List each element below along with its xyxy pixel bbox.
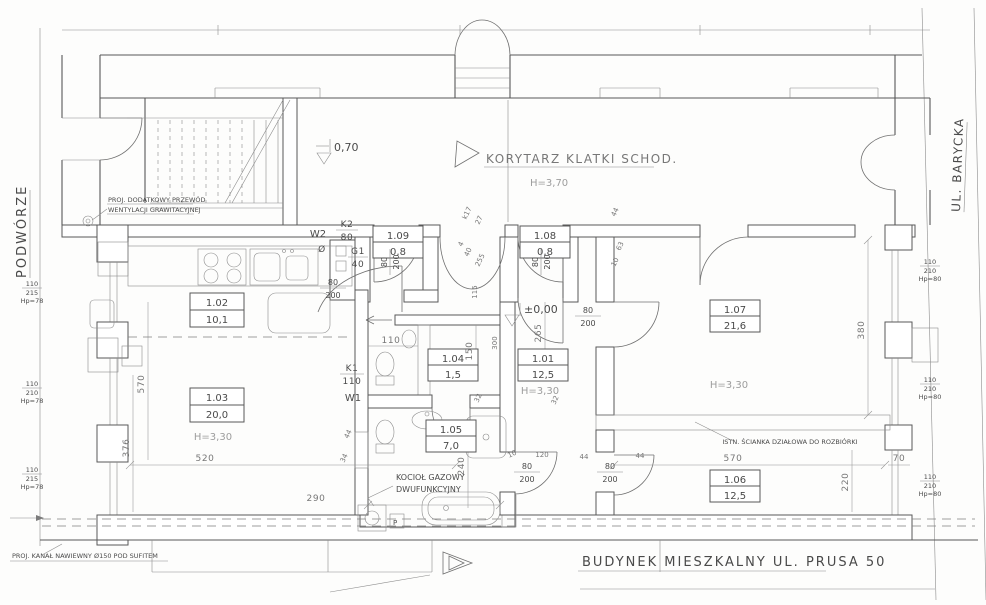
svg-text:200: 200 xyxy=(602,475,617,484)
room-label-1-07: 1.07 21,6 H=3,30 xyxy=(710,300,760,391)
dim-110: 110 xyxy=(382,336,401,346)
svg-text:1.05: 1.05 xyxy=(440,425,462,436)
svg-text:215: 215 xyxy=(26,475,38,483)
window-label-right-2: 110 210 Hp=80 xyxy=(919,376,942,401)
window-label-right-3: 110 210 Hp=80 xyxy=(919,473,942,498)
svg-text:7,0: 7,0 xyxy=(443,441,459,452)
corridor-name: KORYTARZ KLATKI SCHOD. xyxy=(486,152,678,166)
dim-120: 120 xyxy=(535,451,548,459)
street-label-right: UL. BARYCKA xyxy=(949,117,967,212)
door-label-101-lobby: 80 200 xyxy=(514,462,540,484)
room-label-1-03: 1.03 20,0 H=3,30 xyxy=(190,388,244,443)
svg-text:80: 80 xyxy=(380,257,389,267)
apartment-level: ±0,00 xyxy=(524,303,558,316)
dim-40: 40 xyxy=(463,246,474,257)
left-outer-wall xyxy=(97,225,128,545)
dim-290: 290 xyxy=(307,494,326,504)
stack-w2-dia: Ø xyxy=(318,244,326,255)
dim-44-a: 44 xyxy=(610,206,621,218)
svg-text:Hp=80: Hp=80 xyxy=(919,275,942,283)
svg-text:210: 210 xyxy=(924,267,936,275)
room-label-1-01: 1.01 12,5 H=3,30 xyxy=(518,349,568,397)
dim-44-b: 44 xyxy=(343,428,354,440)
svg-text:80: 80 xyxy=(328,278,338,287)
svg-text:210: 210 xyxy=(924,482,936,490)
annotation-demolition: ISTN. ŚCIANKA DZIAŁOWA DO ROZBIÓRKI xyxy=(695,422,858,446)
svg-text:200: 200 xyxy=(392,254,401,269)
apartment-north-wall xyxy=(62,225,915,237)
svg-text:1.09: 1.09 xyxy=(387,231,409,242)
building-title: BUDYNEK MIESZKALNY UL. PRUSA 50 xyxy=(582,555,886,570)
svg-text:80: 80 xyxy=(531,257,540,267)
svg-text:80: 80 xyxy=(341,233,354,243)
svg-text:1.02: 1.02 xyxy=(206,298,228,309)
drawing-mark-icon xyxy=(443,552,472,574)
dim-150: 150 xyxy=(465,342,475,361)
svg-text:1,5: 1,5 xyxy=(445,370,461,381)
corridor-height: H=3,70 xyxy=(530,178,568,189)
svg-text:Hp=78: Hp=78 xyxy=(21,297,44,305)
svg-text:PROJ. KANAŁ NAWIEWNY Ø150 POD: PROJ. KANAŁ NAWIEWNY Ø150 POD SUFITEM xyxy=(12,552,158,560)
svg-text:110: 110 xyxy=(26,380,38,388)
corridor-level: 0,70 xyxy=(334,141,359,154)
stack-k2: K2 xyxy=(341,220,354,230)
dim-k17: k17 xyxy=(461,206,474,221)
dim-376: 376 xyxy=(122,439,132,458)
svg-text:1.01: 1.01 xyxy=(532,354,554,365)
window-labels: 110 215 Hp=78 110 210 Hp=78 110 215 Hp=7… xyxy=(21,258,942,498)
dim-220: 220 xyxy=(841,473,851,492)
dim-255: 255 xyxy=(474,252,487,268)
dim-265: 265 xyxy=(534,324,544,343)
section-arrow-icon xyxy=(455,141,479,167)
svg-text:1.07: 1.07 xyxy=(724,305,746,316)
street-double-door-arc xyxy=(861,135,895,162)
svg-text:10,1: 10,1 xyxy=(206,315,228,326)
stack-w2: W2 xyxy=(310,229,326,240)
room-label-1-08: 1.08 0,8 xyxy=(520,226,570,258)
svg-text:80: 80 xyxy=(605,462,615,471)
wc-door-arrow-icon xyxy=(366,316,392,324)
dim-63: 63 xyxy=(615,240,626,251)
dim-44-c: 44 xyxy=(580,453,589,461)
svg-text:210: 210 xyxy=(924,385,936,393)
svg-text:215: 215 xyxy=(26,289,38,297)
door-arc-106 xyxy=(614,455,654,495)
svg-text:200: 200 xyxy=(325,291,340,300)
street-label-left: PODWÓRZE xyxy=(14,185,30,278)
svg-text:PROJ. DODATKOWY PRZEWÓD: PROJ. DODATKOWY PRZEWÓD xyxy=(108,195,206,204)
dim-380: 380 xyxy=(857,321,867,340)
door-arc-107 xyxy=(614,302,659,347)
svg-text:WENTYLACJI GRAWITACYJNEJ: WENTYLACJI GRAWITACYJNEJ xyxy=(108,206,201,214)
svg-text:KOCIOŁ GAZOWY: KOCIOŁ GAZOWY xyxy=(396,473,465,482)
room-height-1-07: H=3,30 xyxy=(710,380,748,391)
svg-text:80: 80 xyxy=(522,462,532,471)
svg-text:200: 200 xyxy=(543,254,552,269)
dim-70: 70 xyxy=(893,454,906,464)
kitchen-table xyxy=(268,293,330,333)
room-height-1-03: H=3,30 xyxy=(194,432,232,443)
svg-text:21,6: 21,6 xyxy=(724,321,746,332)
room-label-1-09: 1.09 0,8 xyxy=(373,226,423,258)
svg-text:80: 80 xyxy=(583,306,593,315)
svg-text:Hp=80: Hp=80 xyxy=(919,393,942,401)
svg-text:210: 210 xyxy=(26,389,38,397)
dim-300: 300 xyxy=(491,336,499,349)
dim-570-left: 570 xyxy=(137,375,147,394)
entrance-door-leaf-arc xyxy=(455,20,482,55)
yard-door-arc xyxy=(100,118,142,160)
annotation-vent-flue: PROJ. DODATKOWY PRZEWÓD WENTYLACJI GRAWI… xyxy=(92,195,206,220)
dim-520: 520 xyxy=(196,454,215,464)
toilet2-icon xyxy=(376,420,394,444)
svg-text:40: 40 xyxy=(352,260,365,270)
svg-text:1.06: 1.06 xyxy=(724,475,746,486)
room-label-1-06: 1.06 12,5 xyxy=(710,470,760,502)
svg-text:110: 110 xyxy=(26,466,38,474)
dim-44-d: 44 xyxy=(636,452,645,460)
corner-basin-icon xyxy=(402,330,416,348)
stack-w1: W1 xyxy=(345,393,361,404)
stack-g1: G1 xyxy=(351,247,365,257)
svg-text:200: 200 xyxy=(580,319,595,328)
svg-text:110: 110 xyxy=(924,258,936,266)
svg-text:Hp=78: Hp=78 xyxy=(21,397,44,405)
dim-115: 115 xyxy=(471,285,479,298)
floor-plan-page: 0,70 ±0,00 PODWÓRZE UL. BARYCKA KORYTARZ… xyxy=(0,0,986,605)
window-label-right-1: 110 210 Hp=80 xyxy=(919,258,942,283)
room-label-1-05: 1.05 7,0 xyxy=(426,420,476,452)
washer-letter: P xyxy=(393,519,397,527)
svg-text:110: 110 xyxy=(924,473,936,481)
svg-text:110: 110 xyxy=(26,280,38,288)
svg-text:DWUFUNKCYJNY: DWUFUNKCYJNY xyxy=(396,485,461,494)
svg-text:110: 110 xyxy=(343,377,362,387)
demolition-wall-hatch xyxy=(596,415,890,430)
front-building-walls xyxy=(62,20,930,225)
dim-570-bottom: 570 xyxy=(724,454,743,464)
room-label-1-02: 1.02 10,1 xyxy=(190,293,244,327)
door-label-107: 80 200 xyxy=(575,306,601,328)
svg-text:12,5: 12,5 xyxy=(532,370,554,381)
svg-text:Hp=80: Hp=80 xyxy=(919,490,942,498)
svg-text:UL. BARYCKA: UL. BARYCKA xyxy=(949,117,966,212)
door-label-106: 80 200 xyxy=(597,462,623,484)
svg-text:PODWÓRZE: PODWÓRZE xyxy=(14,185,30,278)
floor-plan-canvas: 0,70 ±0,00 PODWÓRZE UL. BARYCKA KORYTARZ… xyxy=(0,0,986,605)
stair-risers xyxy=(158,120,278,203)
svg-text:ISTN. ŚCIANKA DZIAŁOWA DO ROZB: ISTN. ŚCIANKA DZIAŁOWA DO ROZBIÓRKI xyxy=(722,437,857,446)
door-arc-corridor-107 xyxy=(700,237,748,285)
stack-k1: K1 xyxy=(346,364,359,374)
svg-text:110: 110 xyxy=(924,376,936,384)
svg-text:Hp=78: Hp=78 xyxy=(21,483,44,491)
dim-34: 34 xyxy=(339,452,350,464)
svg-text:1.04: 1.04 xyxy=(442,354,464,365)
dim-27: 27 xyxy=(474,214,485,225)
svg-text:1.08: 1.08 xyxy=(534,231,556,242)
toilet-icon xyxy=(376,352,394,376)
svg-text:12,5: 12,5 xyxy=(724,491,746,502)
dim-4: 4 xyxy=(457,240,466,248)
svg-text:1.03: 1.03 xyxy=(206,393,228,404)
svg-text:200: 200 xyxy=(519,475,534,484)
svg-text:20,0: 20,0 xyxy=(206,410,228,421)
